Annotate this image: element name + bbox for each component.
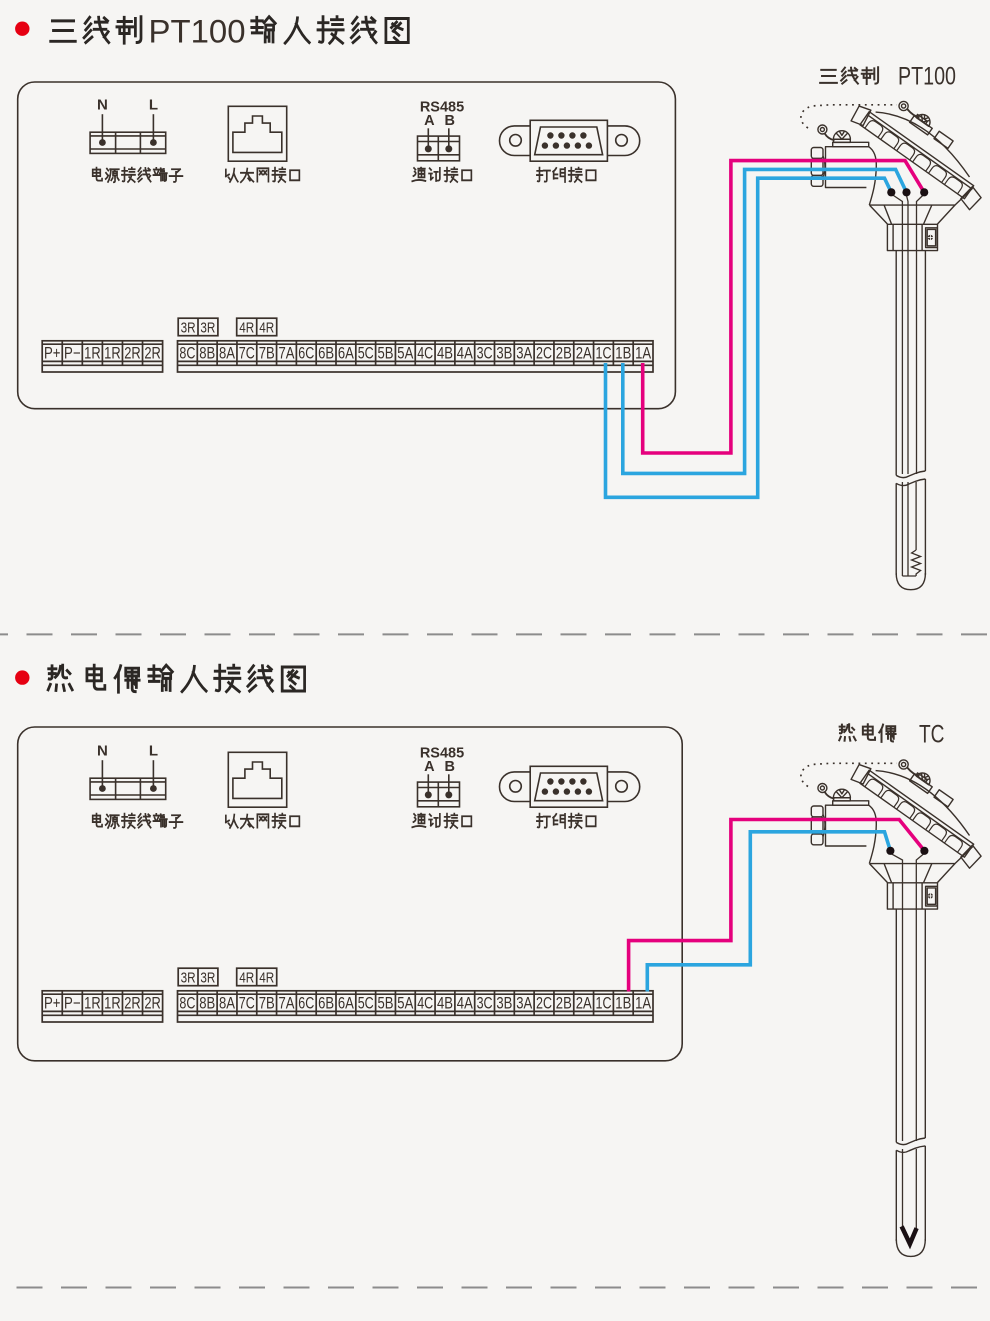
svg-text:A: A — [424, 113, 435, 129]
svg-text:L: L — [149, 743, 158, 760]
svg-text:A: A — [424, 759, 435, 775]
svg-text:B: B — [444, 759, 454, 775]
svg-text:N: N — [97, 97, 108, 114]
svg-text:PT100: PT100 — [149, 14, 246, 50]
svg-text:PT100: PT100 — [898, 63, 956, 91]
svg-text:L: L — [149, 97, 158, 114]
svg-text:N: N — [97, 743, 108, 760]
svg-text:B: B — [444, 113, 454, 129]
svg-text:TC: TC — [919, 721, 945, 749]
